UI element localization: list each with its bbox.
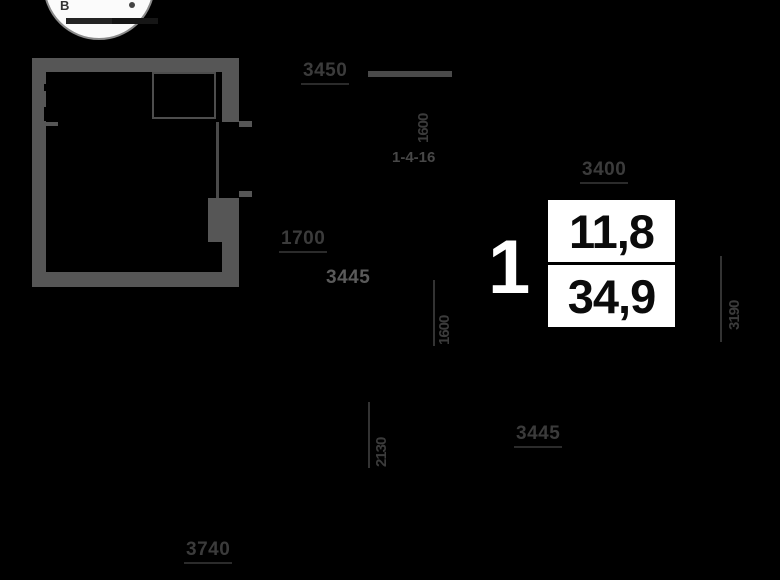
window-frame-line xyxy=(216,122,219,198)
dimension-label: 3445 xyxy=(516,424,560,443)
faded-wall-segment xyxy=(112,18,158,24)
room-wall-left xyxy=(32,58,46,287)
faded-wall-segment xyxy=(66,18,112,24)
dimension-line xyxy=(368,402,370,468)
room-wall-top xyxy=(32,58,239,72)
dimension-line xyxy=(433,280,435,346)
room-wall-right-lower xyxy=(222,242,239,287)
dimension-label: 3400 xyxy=(582,160,626,179)
dimension-label: 3445 xyxy=(326,268,370,287)
unit-area-panel[interactable]: 11,8 34,9 xyxy=(548,200,675,327)
window-sill-stub xyxy=(239,191,252,197)
window-sill-stub xyxy=(239,121,252,127)
dimension-line xyxy=(720,256,722,342)
unit-living-area: 11,8 xyxy=(548,200,675,262)
dimension-label: 1600 xyxy=(437,283,452,345)
floor-plan: В 3450 1600 1-4-16 1700 3445 1600 2130 3… xyxy=(0,0,780,580)
room-recess-outline xyxy=(152,72,216,119)
compass-east-label: В xyxy=(60,0,69,13)
dimension-label: 1700 xyxy=(281,229,325,248)
unit-total-area: 34,9 xyxy=(548,265,675,327)
dimension-label: 1-4-16 xyxy=(392,150,435,165)
dimension-label: 2130 xyxy=(374,403,389,467)
dimension-label: 1600 xyxy=(416,85,431,143)
dimension-label: 3190 xyxy=(727,268,742,330)
unit-room-count: 1 xyxy=(488,230,530,306)
room-wall-right-upper xyxy=(222,58,239,122)
wall-opening-slit xyxy=(44,107,52,121)
dimension-label: 3450 xyxy=(303,61,347,80)
compass-tick-icon xyxy=(129,2,135,8)
wall-opening-slit xyxy=(44,84,52,91)
corridor-wall-fragment xyxy=(368,71,452,77)
dimension-label: 3740 xyxy=(186,540,230,559)
room-wall-bottom xyxy=(32,272,224,287)
wall-tick xyxy=(46,122,58,126)
room-wall-right-mid xyxy=(208,198,239,242)
